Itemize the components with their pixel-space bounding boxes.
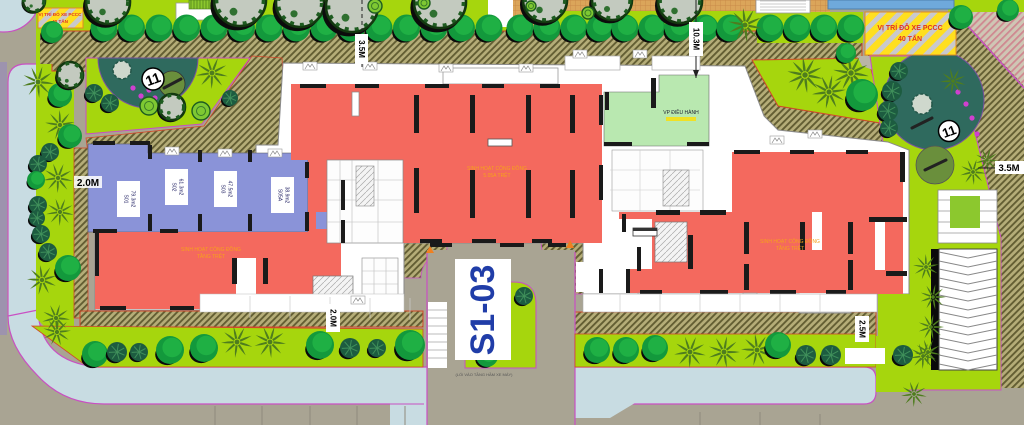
- svg-text:SINH HOẠT CỘNG ĐỒNG: SINH HOẠT CỘNG ĐỒNG: [760, 238, 820, 245]
- svg-text:47.5m2: 47.5m2: [227, 181, 233, 198]
- svg-text:TẦNG TRỆT: TẦNG TRỆT: [776, 244, 804, 252]
- svg-text:TẦNG TRỆT: TẦNG TRỆT: [197, 252, 225, 260]
- svg-text:61.3m2: 61.3m2: [178, 179, 184, 196]
- svg-text:2.0M: 2.0M: [329, 309, 338, 327]
- svg-text:VP ĐIỀU HÀNH: VP ĐIỀU HÀNH: [663, 109, 699, 116]
- svg-text:3.5M: 3.5M: [998, 163, 1019, 174]
- svg-text:(LỐI VÀO TẦNG HẦM XE MÁY): (LỐI VÀO TẦNG HẦM XE MÁY): [455, 372, 513, 377]
- svg-text:S1-03: S1-03: [464, 265, 502, 356]
- svg-text:10.3M: 10.3M: [692, 28, 701, 51]
- svg-text:S01: S01: [123, 195, 129, 204]
- svg-text:SINH HOẠT CỘNG ĐỒNG: SINH HOẠT CỘNG ĐỒNG: [181, 246, 241, 253]
- svg-text:3.5M: 3.5M: [357, 40, 366, 58]
- svg-text:5.05A TRỆT: 5.05A TRỆT: [483, 171, 510, 179]
- svg-text:S05A: S05A: [277, 189, 283, 202]
- svg-text:SINH HOẠT CỘNG ĐỒNG: SINH HOẠT CỘNG ĐỒNG: [467, 165, 527, 172]
- svg-text:38.9m2: 38.9m2: [284, 187, 290, 204]
- svg-text:2.5M: 2.5M: [858, 320, 867, 338]
- svg-text:79.3m2: 79.3m2: [130, 191, 136, 208]
- svg-text:S03: S03: [220, 185, 226, 194]
- svg-text:VỊ TRÍ ĐỖ XE PCCC: VỊ TRÍ ĐỖ XE PCCC: [877, 23, 942, 32]
- svg-text:VỊ TRÍ ĐỖ XE PCCC: VỊ TRÍ ĐỖ XE PCCC: [39, 10, 83, 17]
- svg-text:S02: S02: [171, 183, 177, 192]
- svg-text:2.0M: 2.0M: [77, 178, 99, 189]
